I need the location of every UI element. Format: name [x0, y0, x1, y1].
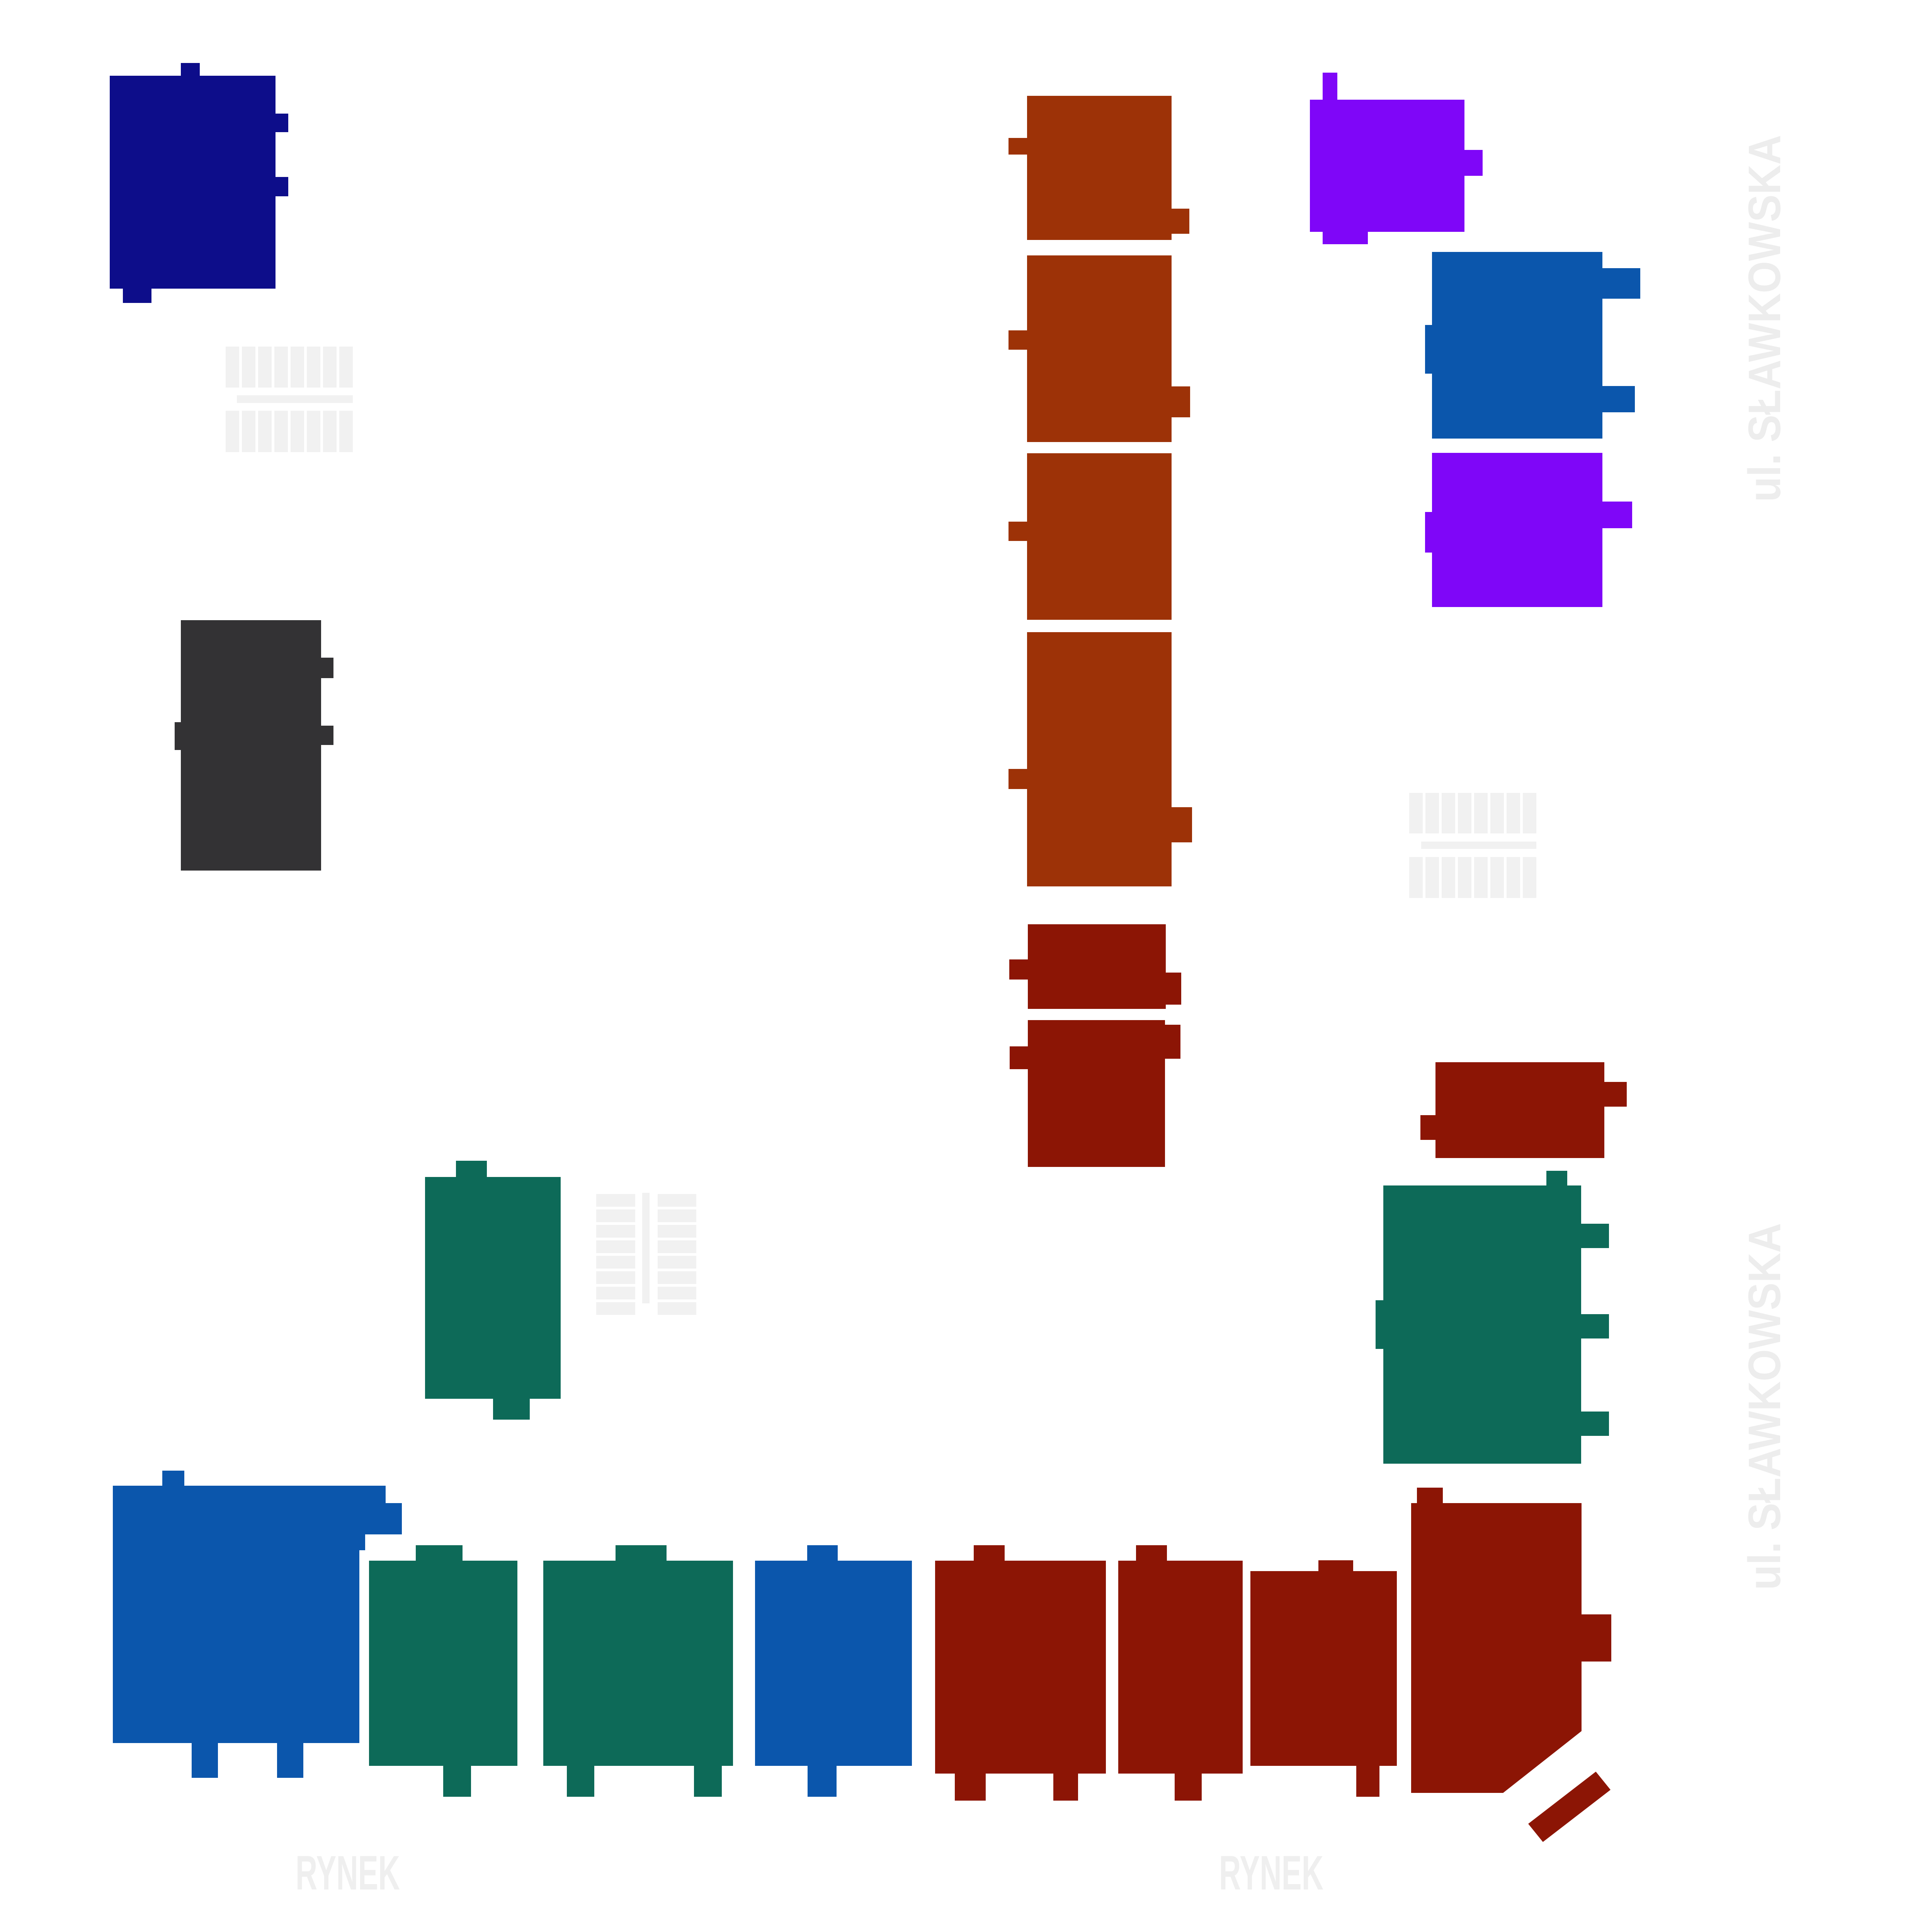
- building-red-e-small[interactable]: [1420, 1062, 1627, 1158]
- crosswalk-stripe: [596, 1287, 635, 1299]
- crosswalk-stripe: [339, 411, 353, 452]
- building-rust-c2[interactable]: [1009, 255, 1190, 442]
- buildings-layer: [110, 63, 1640, 1842]
- crosswalk-stripe: [658, 1209, 696, 1222]
- building-teal-e[interactable]: [1376, 1171, 1609, 1464]
- building-red-c2[interactable]: [1010, 1020, 1180, 1167]
- crosswalk-stripe: [1474, 857, 1488, 898]
- city-map-svg: ul. SŁAWKOWSKA ul. SŁAWKOWSKA RYNEK RYNE…: [0, 0, 1932, 1932]
- crosswalk-stripe: [658, 1287, 696, 1299]
- street-label-rynek-right: RYNEK: [1219, 1846, 1323, 1900]
- crosswalk-stripe: [596, 1209, 635, 1222]
- building-red-se-corner[interactable]: [1528, 1772, 1611, 1842]
- crosswalk-stripe: [258, 411, 272, 452]
- building-rust-c4[interactable]: [1009, 632, 1192, 886]
- building-navy-nw[interactable]: [110, 63, 288, 303]
- crosswalk-stripe: [307, 411, 320, 452]
- crosswalk-stripe: [226, 347, 239, 388]
- crosswalk-stripe: [1523, 857, 1536, 898]
- building-gray-w[interactable]: [175, 620, 333, 871]
- crosswalk-stripe: [339, 347, 353, 388]
- city-map: ul. SŁAWKOWSKA ul. SŁAWKOWSKA RYNEK RYNE…: [0, 0, 1932, 1932]
- crosswalk-stripe: [658, 1302, 696, 1315]
- street-label-slawkowska-bottom: ul. SŁAWKOWSKA: [1739, 1223, 1790, 1590]
- building-purple-ne[interactable]: [1310, 73, 1483, 244]
- crosswalk-stripe: [1442, 793, 1455, 833]
- crosswalk-stripe: [596, 1256, 635, 1269]
- crosswalk-stripe: [596, 1194, 635, 1207]
- building-red-se-big[interactable]: [1411, 1488, 1611, 1793]
- crosswalk-c: [596, 1193, 696, 1315]
- crosswalk-stripe: [1458, 857, 1471, 898]
- crosswalk-stripe: [1490, 857, 1504, 898]
- crosswalk-stripe: [1507, 857, 1520, 898]
- crosswalk-stripe: [274, 347, 288, 388]
- crosswalk-stripe: [226, 411, 239, 452]
- building-red-s3[interactable]: [1250, 1560, 1397, 1797]
- crosswalk-stripe: [274, 411, 288, 452]
- crosswalk-stripe: [596, 1240, 635, 1253]
- crosswalk-stripe: [307, 347, 320, 388]
- crosswalk-stripe: [1409, 793, 1423, 833]
- crosswalk-stripe: [242, 411, 255, 452]
- crosswalk-stripe: [1458, 793, 1471, 833]
- building-teal-s1[interactable]: [369, 1545, 517, 1797]
- crosswalk-stripe: [658, 1256, 696, 1269]
- crosswalk-stripe: [596, 1302, 635, 1315]
- crosswalk-stripe: [291, 411, 304, 452]
- building-blue-s[interactable]: [755, 1545, 912, 1797]
- crosswalk-divider: [237, 395, 353, 403]
- building-red-c1[interactable]: [1009, 924, 1181, 1009]
- crosswalk-stripe: [658, 1240, 696, 1253]
- crosswalk-stripe: [323, 411, 337, 452]
- crosswalk-divider: [1421, 842, 1536, 849]
- crosswalk-stripe: [1442, 857, 1455, 898]
- building-red-s2[interactable]: [1118, 1545, 1243, 1801]
- building-red-s1[interactable]: [935, 1545, 1106, 1801]
- crosswalk-stripe: [658, 1194, 696, 1207]
- crosswalk-e: [1409, 793, 1536, 898]
- crosswalk-stripe: [1523, 793, 1536, 833]
- crosswalk-stripe: [242, 347, 255, 388]
- building-blue-ne[interactable]: [1425, 252, 1640, 439]
- crosswalk-stripe: [1507, 793, 1520, 833]
- building-violet-e[interactable]: [1425, 453, 1632, 607]
- building-rust-c3[interactable]: [1009, 453, 1172, 620]
- crosswalk-stripe: [1425, 857, 1439, 898]
- crosswalk-stripe: [658, 1225, 696, 1238]
- crosswalk-stripe: [323, 347, 337, 388]
- crosswalk-nw: [226, 347, 353, 452]
- building-rust-c1[interactable]: [1009, 96, 1189, 240]
- crosswalk-stripe: [1409, 857, 1423, 898]
- crosswalk-stripe: [596, 1225, 635, 1238]
- building-blue-sw[interactable]: [113, 1471, 402, 1778]
- crosswalk-stripe: [658, 1271, 696, 1284]
- crosswalk-divider: [642, 1193, 650, 1303]
- street-label-rynek-left: RYNEK: [296, 1846, 400, 1900]
- crosswalks-layer: [226, 347, 1536, 1315]
- street-label-slawkowska-top: ul. SŁAWKOWSKA: [1739, 135, 1790, 502]
- crosswalk-stripe: [1425, 793, 1439, 833]
- building-teal-c-small[interactable]: [425, 1161, 561, 1420]
- crosswalk-stripe: [291, 347, 304, 388]
- crosswalk-stripe: [596, 1271, 635, 1284]
- building-teal-s2[interactable]: [543, 1545, 733, 1797]
- crosswalk-stripe: [1490, 793, 1504, 833]
- crosswalk-stripe: [258, 347, 272, 388]
- crosswalk-stripe: [1474, 793, 1488, 833]
